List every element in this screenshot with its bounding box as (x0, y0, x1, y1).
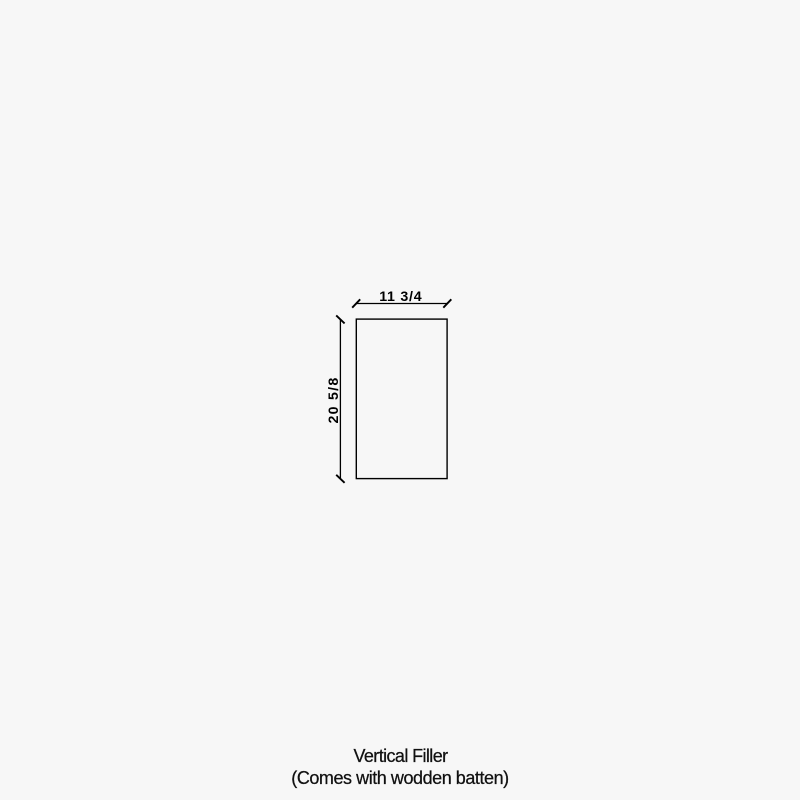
svg-text:Vertical Filler: Vertical Filler (353, 746, 448, 766)
svg-text:20 5/8: 20 5/8 (326, 377, 342, 424)
svg-text:(Comes with wodden batten): (Comes with wodden batten) (291, 768, 508, 788)
svg-text:11 3/4: 11 3/4 (379, 289, 422, 305)
